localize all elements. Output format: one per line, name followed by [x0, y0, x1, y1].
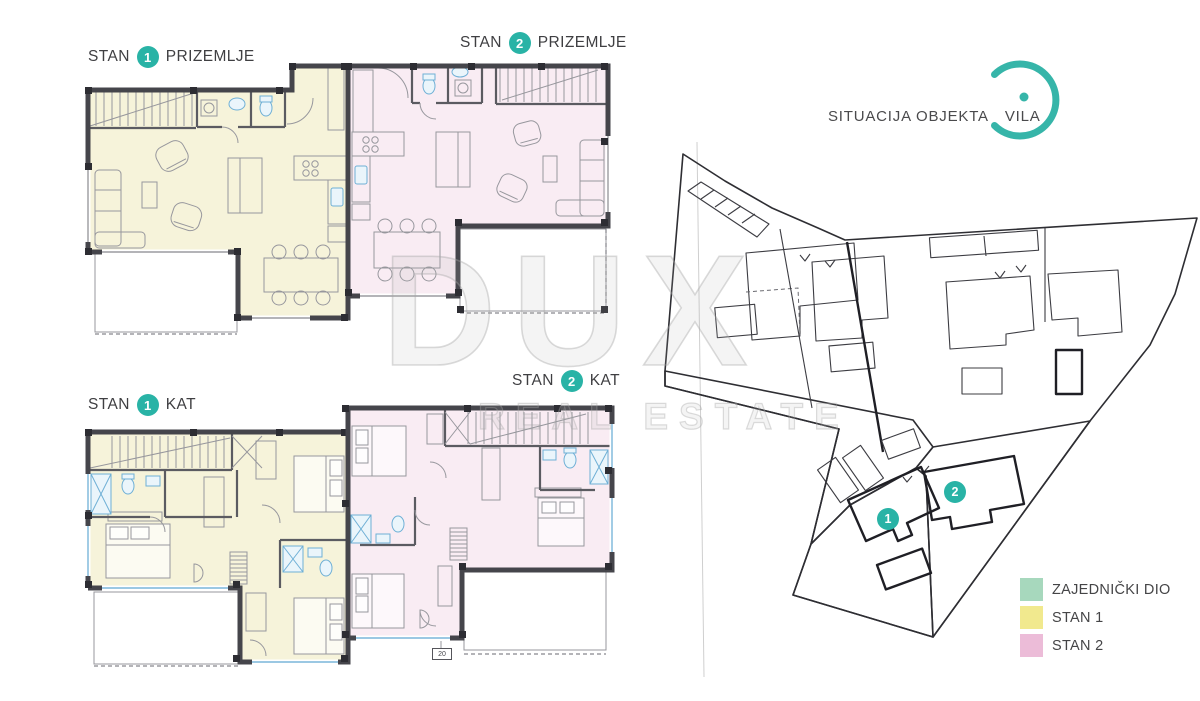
site-marker-stan2: 2: [944, 481, 966, 503]
site-title-left: SITUACIJA OBJEKTA: [828, 108, 989, 125]
title-prefix: STAN: [88, 396, 130, 414]
title-level: PRIZEMLJE: [538, 34, 627, 52]
site-plan-title: SITUACIJA OBJEKTA VILA: [828, 108, 1041, 125]
site-title-right: VILA: [1005, 108, 1041, 125]
legend-swatch-common: [1020, 578, 1043, 601]
watermark-real-estate: REAL ESTATE: [478, 398, 850, 435]
legend-swatch-stan2: [1020, 634, 1043, 657]
legend-label-stan1: STAN 1: [1052, 610, 1104, 626]
dimension-tag: 20: [432, 648, 452, 660]
unit-1-badge: 1: [137, 394, 159, 416]
plan-stan2-kat: [342, 405, 612, 654]
legend-label-common: ZAJEDNIČKI DIO: [1052, 582, 1171, 598]
unit-2-badge: 2: [509, 32, 531, 54]
title-level: PRIZEMLJE: [166, 48, 255, 66]
building-stan2-footprint: [924, 456, 1024, 529]
title-stan1-prizemlje: STAN 1 PRIZEMLJE: [88, 46, 255, 68]
floor-plan-sheet: STAN 1 PRIZEMLJE STAN 2 PRIZEMLJE STAN 1…: [0, 0, 1200, 701]
brand-logo-icon: [995, 64, 1056, 136]
title-stan1-kat: STAN 1 KAT: [88, 394, 196, 416]
legend-swatch-stan1: [1020, 606, 1043, 629]
unit-1-badge: 1: [137, 46, 159, 68]
legend-label-stan2: STAN 2: [1052, 638, 1104, 654]
watermark-dux: DUX: [382, 232, 764, 390]
legend-item-stan2: STAN 2: [1020, 634, 1171, 657]
title-prefix: STAN: [460, 34, 502, 52]
legend: ZAJEDNIČKI DIO STAN 1 STAN 2: [1020, 578, 1171, 662]
title-prefix: STAN: [88, 48, 130, 66]
plan-stan1-kat: [85, 429, 348, 666]
site-marker-stan1: 1: [877, 508, 899, 530]
plan-stan1-prizemlje: [85, 63, 348, 334]
title-stan2-prizemlje: STAN 2 PRIZEMLJE: [460, 32, 627, 54]
title-level: KAT: [166, 396, 196, 414]
legend-item-stan1: STAN 1: [1020, 606, 1171, 629]
legend-item-common: ZAJEDNIČKI DIO: [1020, 578, 1171, 601]
